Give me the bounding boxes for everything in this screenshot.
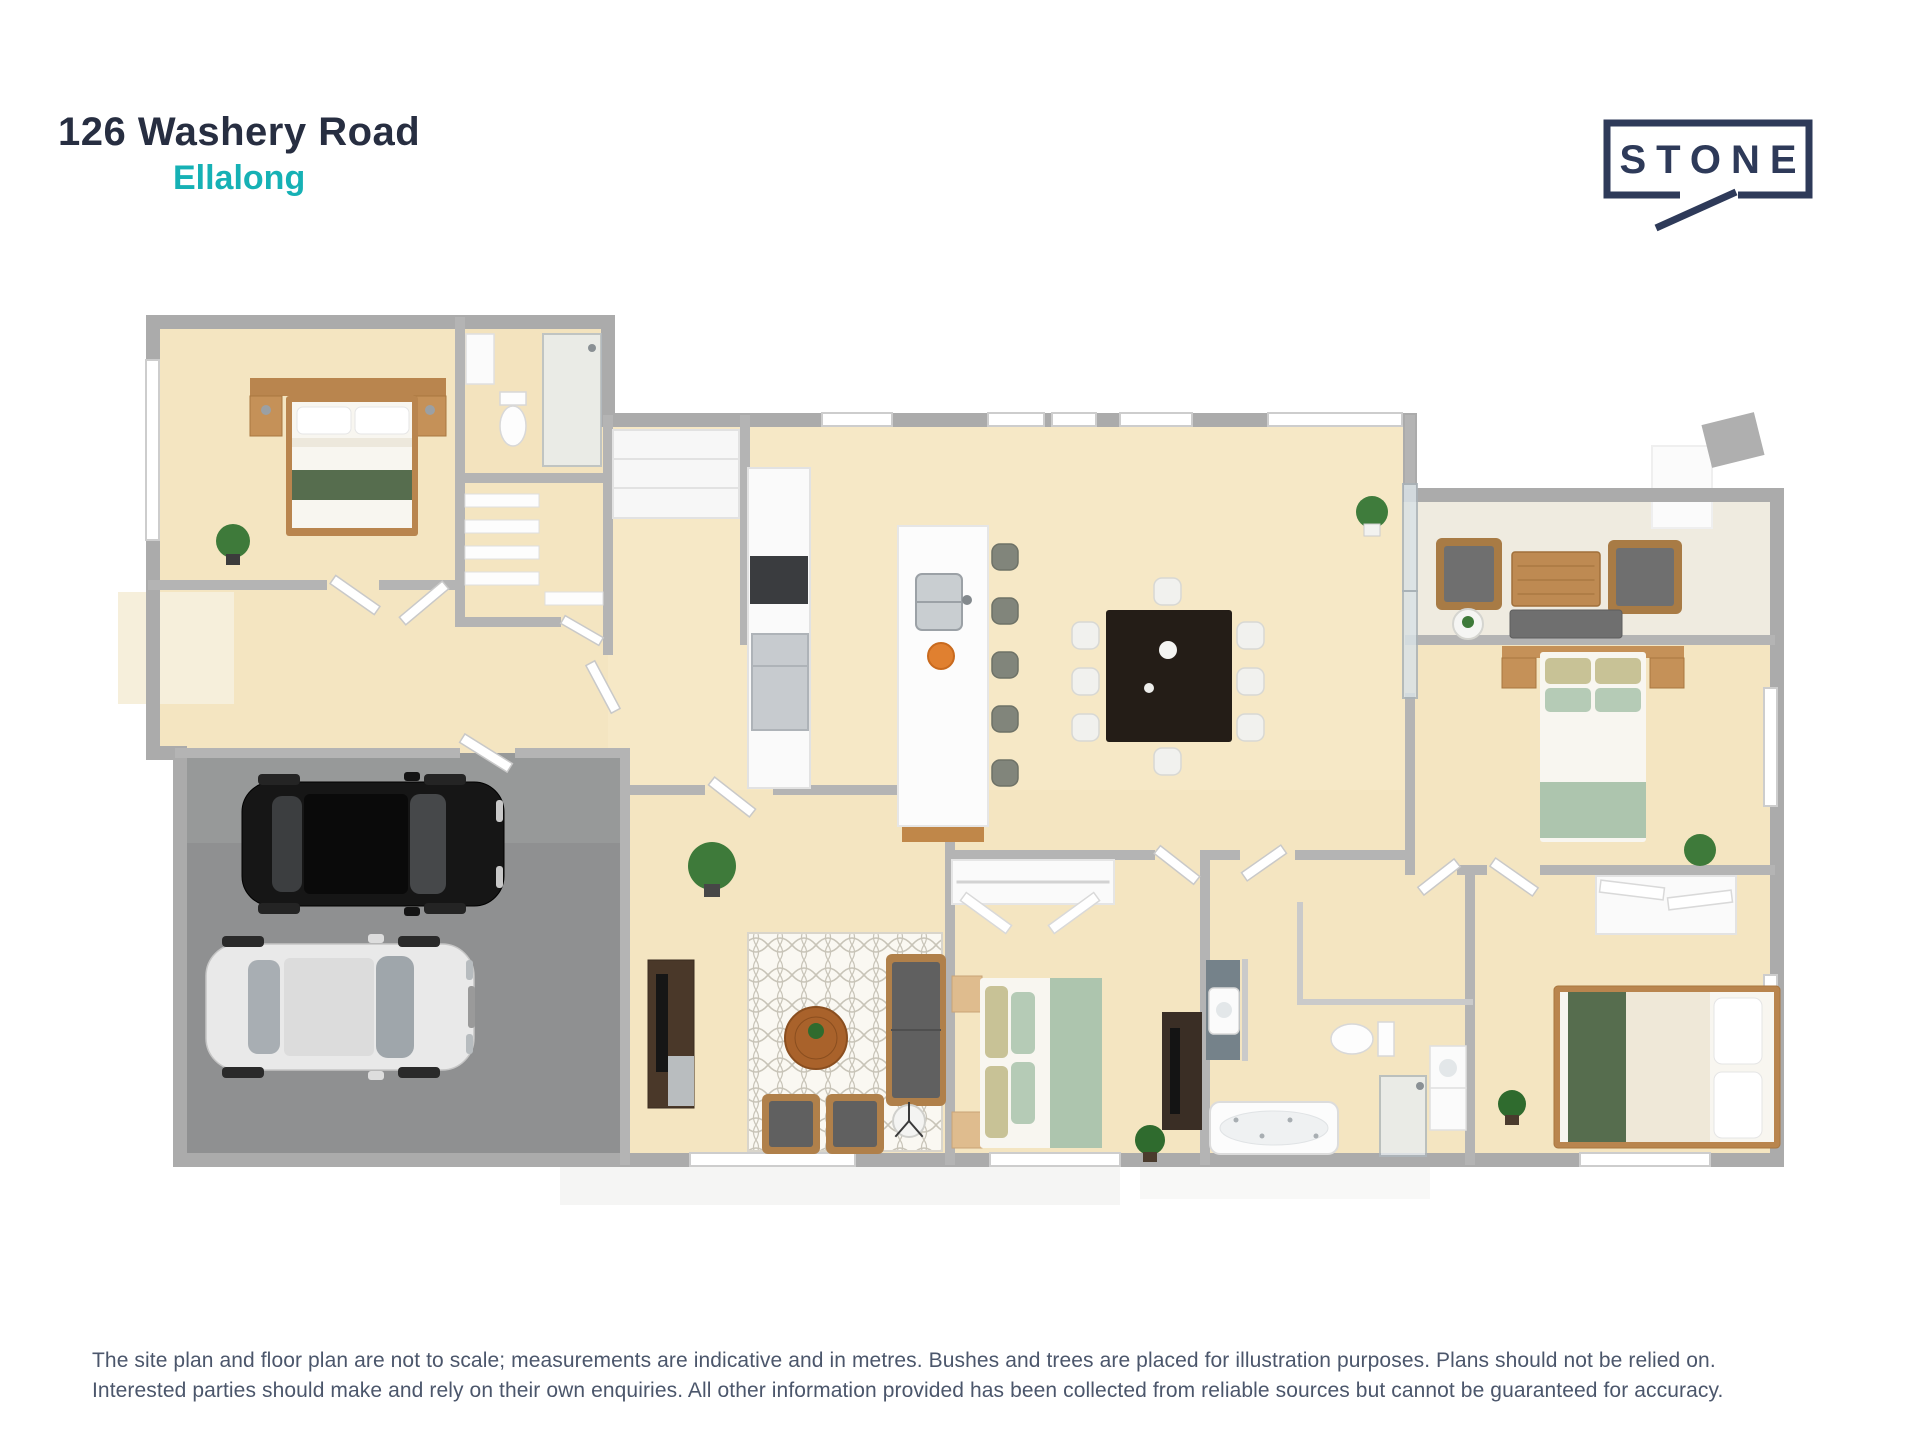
bed1-sheet-fold <box>292 438 412 447</box>
outdoor-chair-1-cushion <box>1444 546 1494 602</box>
bed3-pillow-2 <box>1714 1072 1762 1138</box>
car-white-rear-glass <box>248 960 280 1054</box>
pantry-shelf-2 <box>465 520 539 533</box>
bed1-plant-pot <box>226 554 240 565</box>
dining-chair-7 <box>1154 578 1181 605</box>
bed3-plant-2-pot <box>1505 1115 1519 1125</box>
bed4-bedside-bottom <box>952 1112 982 1148</box>
outdoor-sofa <box>1510 610 1622 638</box>
bed3-throw <box>1568 992 1626 1142</box>
kitchen-oven <box>750 556 808 604</box>
dining-chair-6 <box>1237 714 1264 741</box>
palm-plant <box>1356 496 1388 528</box>
car-black-wheel-1 <box>258 774 300 785</box>
bar-stool-5 <box>992 760 1018 786</box>
car-black-headlight-1 <box>496 800 503 822</box>
bar-stool-1 <box>992 544 1018 570</box>
bed2-pillow-1 <box>1545 658 1591 684</box>
bed3-blanket <box>1626 992 1710 1142</box>
bed4-tv-cabinet <box>1162 1012 1202 1130</box>
car-white-mirror-bottom <box>368 1071 384 1080</box>
car-black-mirror-top <box>404 772 420 781</box>
bed4-throw <box>1050 978 1102 1148</box>
bed4-pillow-1 <box>985 986 1008 1058</box>
bar-stool-4 <box>992 706 1018 732</box>
car-black-wheel-4 <box>424 903 466 914</box>
bar-stool-2 <box>992 598 1018 624</box>
car-black-windshield <box>410 794 446 894</box>
living-plant-pot <box>704 884 720 897</box>
spa-jet-3 <box>1288 1118 1293 1123</box>
window-great-3 <box>1052 413 1096 426</box>
outdoor-chair-2-cushion <box>1616 548 1674 606</box>
floor-plan <box>0 0 1920 1440</box>
kitchen-island <box>898 526 988 826</box>
spa-jet-2 <box>1260 1134 1265 1139</box>
bed1-headboard <box>250 378 446 396</box>
window-great-4 <box>1120 413 1192 426</box>
bed1-bedside-right <box>414 396 446 436</box>
outdoor-side-table-plant <box>1462 616 1474 628</box>
car-black-wheel-2 <box>258 903 300 914</box>
shower1-head <box>588 344 596 352</box>
dining-cup <box>1144 683 1154 693</box>
bed4-pillow-2 <box>985 1066 1008 1138</box>
outdoor-table <box>1512 552 1600 606</box>
living-plant <box>688 842 736 890</box>
pantry-shelf-4 <box>465 572 539 585</box>
car-white-mirror-top <box>368 934 384 943</box>
bath1-vanity <box>466 334 494 384</box>
bed4-pillow-3 <box>1011 992 1035 1054</box>
car-white-wheel-2 <box>222 1067 264 1078</box>
bed3-pillow-1 <box>1714 998 1762 1064</box>
disclaimer-line-2: Interested parties should make and rely … <box>92 1376 1832 1406</box>
bed1-lamp-left <box>261 405 271 415</box>
pantry-shelf-3 <box>465 546 539 559</box>
toilet1-tank <box>500 392 526 405</box>
bed2-pillow-4 <box>1595 688 1641 712</box>
bed1-pillow-left <box>297 407 351 434</box>
window-great-2 <box>988 413 1044 426</box>
bed2-throw <box>1540 782 1646 838</box>
spa-jet-4 <box>1314 1134 1319 1139</box>
roof-vent <box>1701 412 1764 468</box>
bed1-throw <box>292 470 412 500</box>
pantry-shelf-5 <box>545 592 603 605</box>
window-bed1 <box>146 360 159 540</box>
car-white-windshield <box>376 956 414 1058</box>
bed2-pillow-3 <box>1545 688 1591 712</box>
spa-bath-inner <box>1220 1111 1328 1145</box>
dining-chair-5 <box>1237 668 1264 695</box>
tv-unit-shelf <box>668 1056 694 1106</box>
dining-chair-1 <box>1072 622 1099 649</box>
dining-table <box>1106 610 1232 742</box>
coffee-table-plant <box>808 1023 824 1039</box>
dining-chair-4 <box>1237 622 1264 649</box>
car-black-headlight-2 <box>496 866 503 888</box>
car-black-roof <box>304 794 408 894</box>
spa-jet-1 <box>1234 1118 1239 1123</box>
sink-tap <box>962 595 972 605</box>
car-white-wheel-1 <box>222 936 264 947</box>
fruit-bowl <box>928 643 954 669</box>
window-great-1 <box>822 413 892 426</box>
bed1-lamp-right <box>425 405 435 415</box>
car-white-headlight-1 <box>466 960 473 980</box>
car-black-rear-glass <box>272 796 302 892</box>
bed4-bedside-top <box>952 976 982 1012</box>
bed1-pillow-right <box>355 407 409 434</box>
bed3-plant-1 <box>1684 834 1716 866</box>
bed1-plant <box>216 524 250 558</box>
bed2-bedside-left <box>1502 658 1536 688</box>
bed4-pillow-4 <box>1011 1062 1035 1124</box>
bed2-pillow-2 <box>1595 658 1641 684</box>
car-black-mirror-bottom <box>404 907 420 916</box>
ottoman-2-cushion <box>833 1101 877 1147</box>
disclaimer-line-1: The site plan and floor plan are not to … <box>92 1346 1832 1376</box>
bath2-basin <box>1439 1059 1457 1077</box>
porch-slab-2 <box>1140 1167 1430 1199</box>
bed2-bedside-right <box>1650 658 1684 688</box>
bed1-bedside-left <box>250 396 282 436</box>
car-white-wheel-3 <box>398 936 440 947</box>
dining-chair-2 <box>1072 668 1099 695</box>
dining-vase <box>1159 641 1177 659</box>
toilet1-bowl <box>500 406 526 446</box>
floor-plan-page: 126 Washery Road Ellalong STONE The site… <box>0 0 1920 1440</box>
car-white-wheel-4 <box>398 1067 440 1078</box>
kitchen-bench <box>748 468 810 788</box>
car-white-headlight-2 <box>466 1034 473 1054</box>
pantry-shelf-1 <box>465 494 539 507</box>
shower2-head <box>1416 1082 1424 1090</box>
window-bed4 <box>990 1153 1120 1166</box>
car-white-roof <box>284 958 374 1056</box>
bed3-plant-2 <box>1498 1090 1526 1118</box>
bed4-tv <box>1170 1028 1180 1114</box>
hall-cupboard <box>613 430 739 518</box>
ottoman-1-cushion <box>769 1101 813 1147</box>
toilet2-tank <box>1378 1022 1394 1056</box>
bed4-plant <box>1135 1125 1165 1155</box>
bed4-plant-pot <box>1143 1152 1157 1162</box>
dining-chair-8 <box>1154 748 1181 775</box>
disclaimer: The site plan and floor plan are not to … <box>92 1346 1832 1406</box>
window-bed3-south <box>1580 1153 1710 1166</box>
laundry-basin <box>1216 1002 1232 1018</box>
roof-pillar <box>1652 446 1712 528</box>
window-living <box>690 1153 855 1166</box>
palm-pot <box>1364 524 1380 536</box>
tv-screen <box>656 974 668 1072</box>
bar-stool-3 <box>992 652 1018 678</box>
dining-chair-3 <box>1072 714 1099 741</box>
window-great-5 <box>1268 413 1402 426</box>
porch-slab <box>560 1167 1120 1205</box>
car-white-grille <box>468 986 475 1028</box>
shower1-screen <box>543 334 601 466</box>
window-bed2 <box>1764 688 1777 806</box>
patio-floor <box>118 592 234 704</box>
kitchen-fridge <box>752 634 808 730</box>
car-black-wheel-3 <box>424 774 466 785</box>
toilet2-bowl <box>1331 1024 1373 1054</box>
